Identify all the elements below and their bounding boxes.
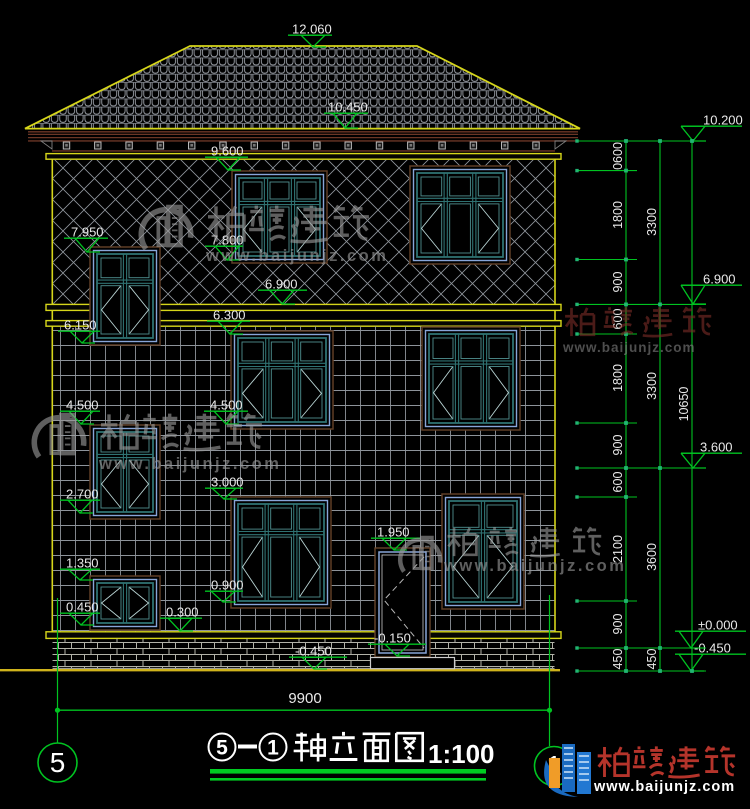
svg-text:1: 1 — [267, 737, 279, 760]
svg-text:0.450: 0.450 — [66, 600, 99, 615]
svg-text:www.baijunjz.com: www.baijunjz.com — [98, 455, 281, 473]
svg-text:0.300: 0.300 — [166, 605, 199, 620]
svg-text:12.060: 12.060 — [292, 22, 332, 37]
svg-text:-0.150: -0.150 — [374, 631, 411, 646]
svg-text:10650: 10650 — [677, 387, 691, 422]
svg-text:9.600: 9.600 — [211, 144, 244, 159]
svg-text:450: 450 — [611, 649, 625, 670]
svg-text:900: 900 — [611, 435, 625, 456]
svg-text:3300: 3300 — [645, 208, 659, 236]
svg-text:4.500: 4.500 — [66, 398, 99, 413]
svg-text:2.700: 2.700 — [66, 487, 99, 502]
svg-text:6.900: 6.900 — [265, 277, 298, 292]
svg-text:5: 5 — [216, 737, 228, 760]
svg-text:1.950: 1.950 — [377, 525, 410, 540]
svg-text:1:100: 1:100 — [428, 739, 495, 769]
svg-text:7.950: 7.950 — [71, 225, 104, 240]
svg-text:1800: 1800 — [611, 201, 625, 229]
svg-text:0600: 0600 — [611, 142, 625, 170]
svg-text:9900: 9900 — [288, 690, 321, 707]
svg-text:www.baijunjz.com: www.baijunjz.com — [443, 557, 626, 575]
svg-text:6.300: 6.300 — [213, 308, 246, 323]
svg-text:0.900: 0.900 — [211, 578, 244, 593]
svg-text:450: 450 — [645, 649, 659, 670]
svg-text:1800: 1800 — [611, 364, 625, 392]
svg-text:1.350: 1.350 — [66, 556, 99, 571]
svg-text:5: 5 — [50, 747, 66, 778]
svg-text:6.150: 6.150 — [64, 318, 97, 333]
svg-text:±0.000: ±0.000 — [698, 618, 738, 633]
svg-text:3.600: 3.600 — [700, 440, 733, 455]
svg-text:3300: 3300 — [645, 372, 659, 400]
svg-text:600: 600 — [611, 472, 625, 493]
svg-text:10.200: 10.200 — [703, 113, 743, 128]
svg-text:10.450: 10.450 — [328, 100, 368, 115]
svg-text:www.baijunjz.com: www.baijunjz.com — [562, 340, 696, 355]
svg-text:900: 900 — [611, 272, 625, 293]
svg-text:-0.450: -0.450 — [295, 644, 332, 659]
svg-text:900: 900 — [611, 614, 625, 635]
svg-text:4.500: 4.500 — [210, 398, 243, 413]
svg-text:6.900: 6.900 — [703, 272, 736, 287]
svg-text:3600: 3600 — [645, 543, 659, 571]
svg-text:www.baijunjz.com: www.baijunjz.com — [205, 247, 388, 265]
svg-text:3.000: 3.000 — [211, 475, 244, 490]
svg-text:www.baijunjz.com: www.baijunjz.com — [593, 779, 735, 795]
